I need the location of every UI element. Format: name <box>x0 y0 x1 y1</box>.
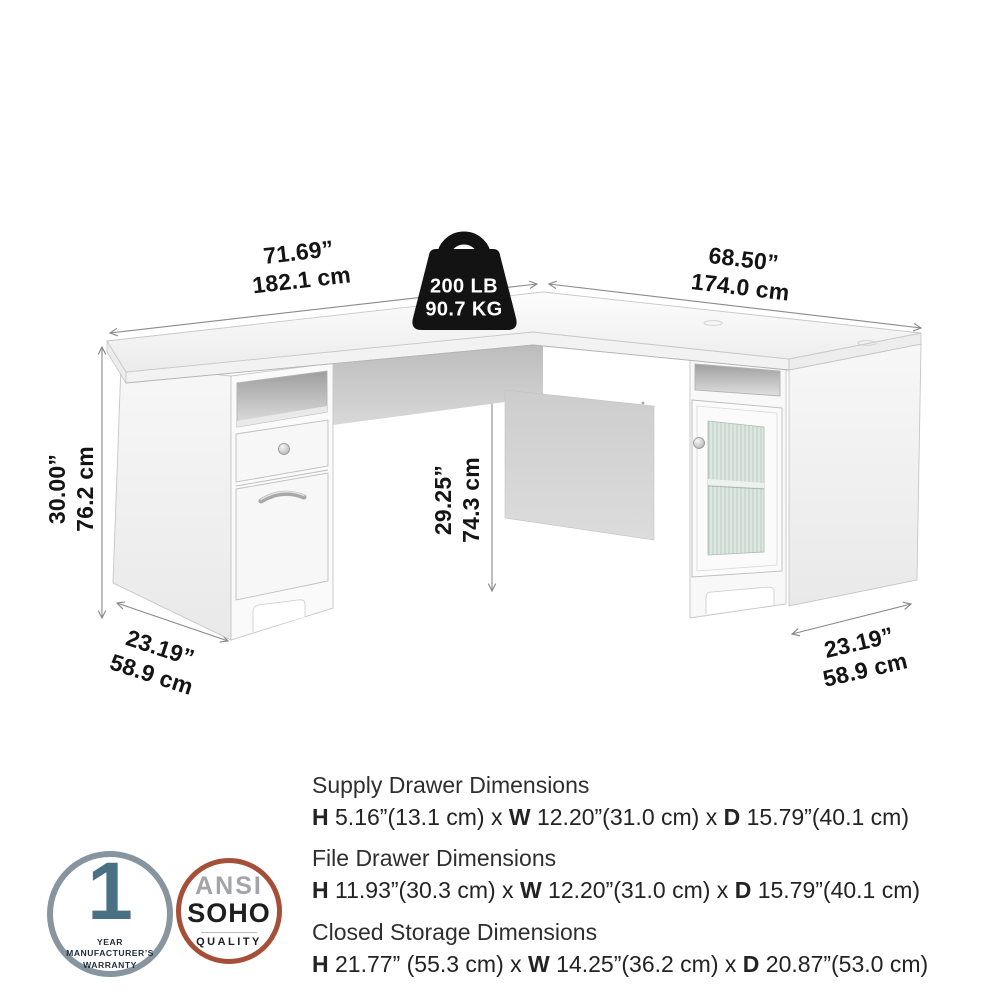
badge-soho-text: SOHO <box>187 900 271 927</box>
warranty-years-number: 1 <box>87 854 133 929</box>
spec-title: Closed Storage Dimensions <box>312 919 928 946</box>
product-dimension-diagram: 200 LB 90.7 KG 71.69” 182.1 cm 68.50” 17… <box>0 0 1000 1000</box>
dimension-label-desk-width-right: 68.50” 174.0 cm <box>690 239 795 306</box>
spec-block-file-drawer: File Drawer Dimensions H 11.93”(30.3 cm)… <box>312 845 920 904</box>
left-pedestal <box>113 363 333 640</box>
warranty-caption: YEAR MANUFACTURER’S WARRANTY <box>53 937 167 972</box>
dimension-label-desk-height: 30.00” 76.2 cm <box>43 446 99 532</box>
weight-capacity-kg: 90.7 KG <box>425 299 502 322</box>
spec-value: H 21.77” (55.3 cm) x W 14.25”(36.2 cm) x… <box>312 951 928 978</box>
pedestal-side-panel <box>113 364 231 640</box>
spec-block-closed-storage: Closed Storage Dimensions H 21.77” (55.3… <box>312 919 928 978</box>
supply-drawer-knob <box>279 444 290 455</box>
spec-value: H 5.16”(13.1 cm) x W 12.20”(31.0 cm) x D… <box>312 804 909 831</box>
spec-block-supply-drawer: Supply Drawer Dimensions H 5.16”(13.1 cm… <box>312 772 909 831</box>
dimension-label-desk-width-left: 71.69” 182.1 cm <box>248 233 353 300</box>
spec-value: H 11.93”(30.3 cm) x W 12.20”(31.0 cm) x … <box>312 877 920 904</box>
dimension-label-knee-space-height: 29.25” 74.3 cm <box>429 457 485 543</box>
cabinet-side-panel <box>789 344 921 606</box>
spec-title: File Drawer Dimensions <box>312 845 920 872</box>
weight-capacity-lb: 200 LB <box>430 276 498 299</box>
badge-divider <box>201 932 257 933</box>
spec-title: Supply Drawer Dimensions <box>312 772 909 799</box>
badge-quality-text: QUALITY <box>196 937 262 948</box>
cabinet-door-knob <box>694 438 705 449</box>
badge-ansi-text: ANSI <box>195 874 263 899</box>
right-cabinet <box>690 344 921 618</box>
cam-fitting-dot <box>642 402 645 405</box>
cabinet-glass-panel <box>708 421 764 555</box>
warranty-badge: 1 YEAR MANUFACTURER’S WARRANTY <box>47 851 173 977</box>
ansi-soho-quality-badge: ANSI SOHO QUALITY <box>176 858 282 964</box>
desk-corner-panel <box>505 390 654 540</box>
